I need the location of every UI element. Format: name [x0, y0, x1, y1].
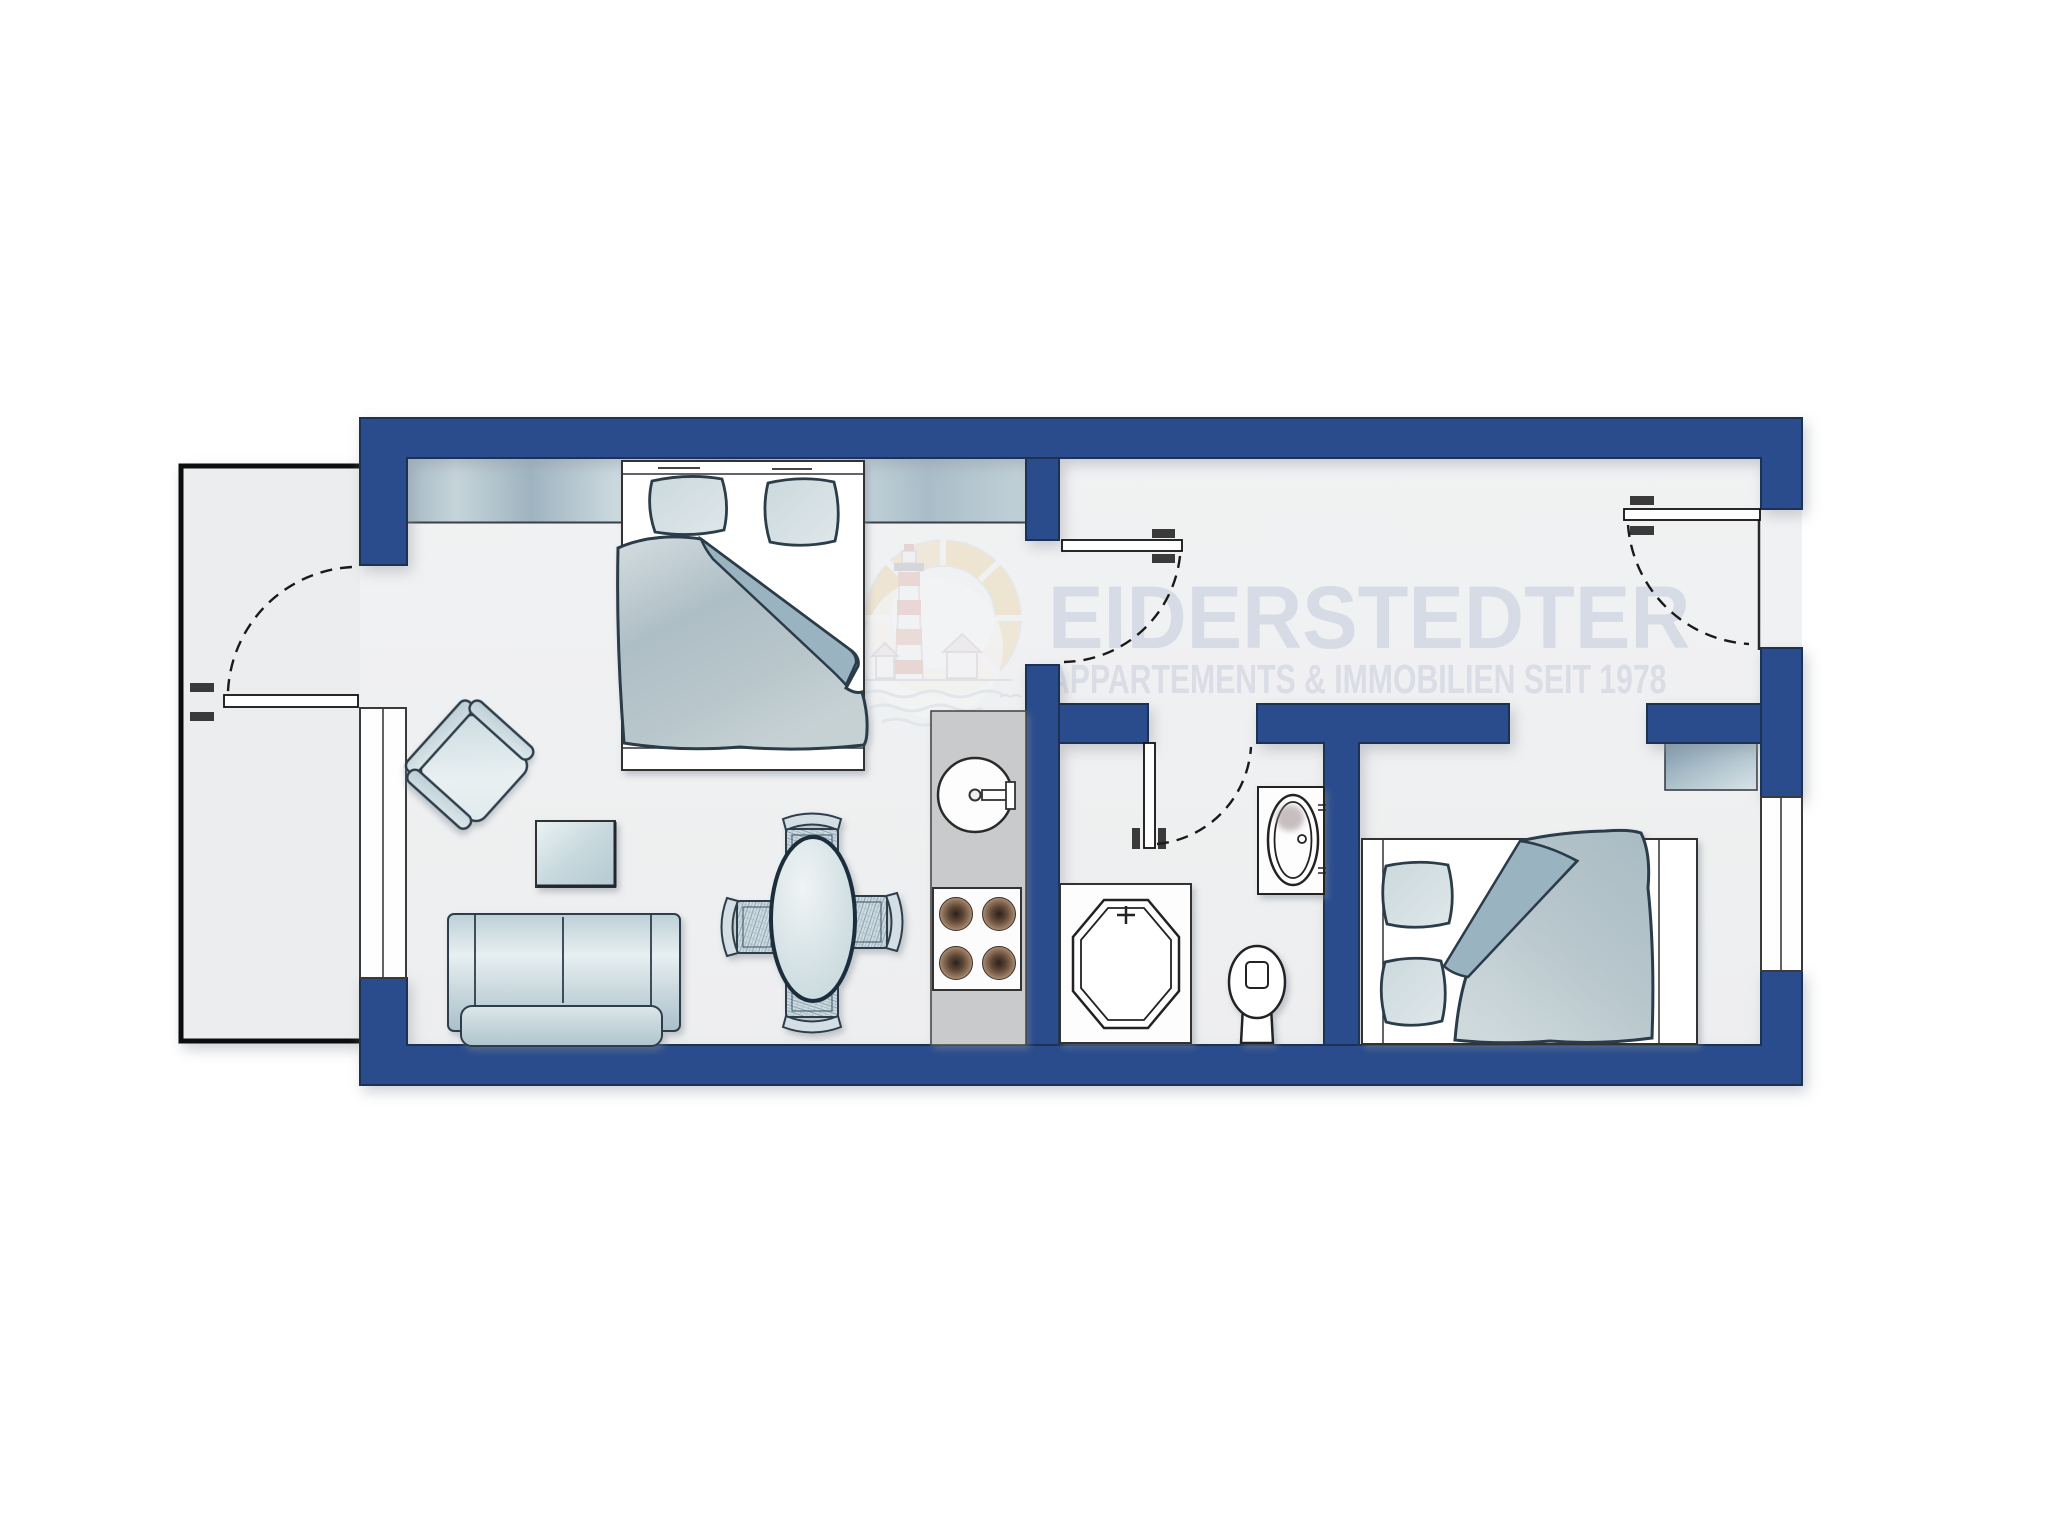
svg-text:EIDERSTEDTER: EIDERSTEDTER	[1048, 567, 1690, 667]
svg-text:APPARTEMENTS & IMMOBILIEN SEIT: APPARTEMENTS & IMMOBILIEN SEIT 1978	[1048, 657, 1666, 703]
